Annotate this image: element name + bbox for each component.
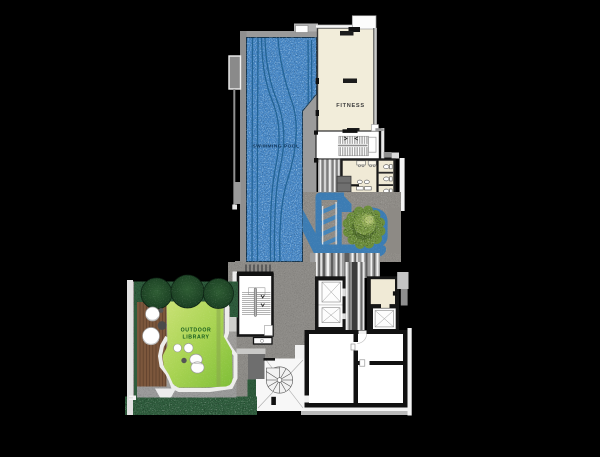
svg-text:OUTDOOR: OUTDOOR — [181, 328, 212, 334]
svg-text:LIBRARY: LIBRARY — [182, 335, 209, 341]
svg-text:FITNESS: FITNESS — [336, 103, 365, 109]
svg-text:SWIMMING POOL: SWIMMING POOL — [252, 144, 299, 150]
